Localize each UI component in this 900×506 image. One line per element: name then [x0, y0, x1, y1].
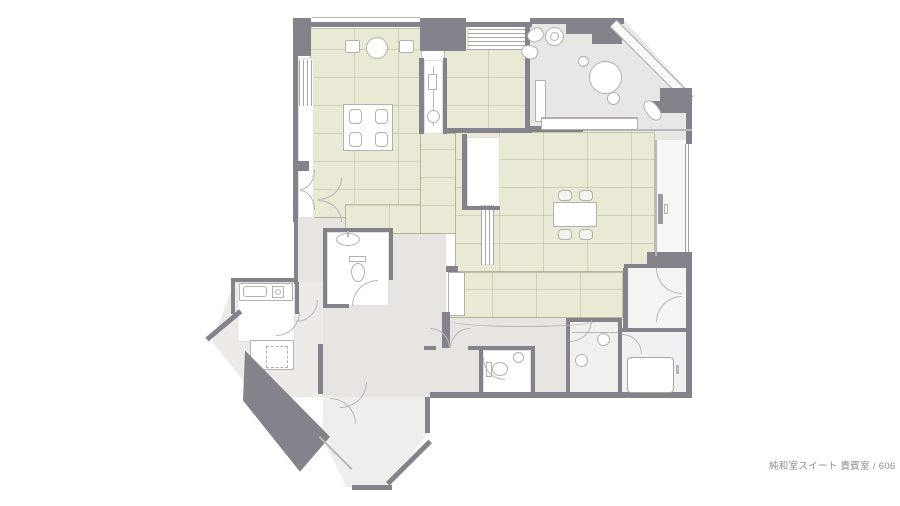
tv-cabinet	[535, 80, 546, 122]
bathtub	[627, 357, 674, 393]
wall-segment	[323, 228, 393, 232]
wall-segment	[622, 328, 688, 332]
flower-vase	[427, 110, 440, 123]
wall-segment	[294, 220, 298, 284]
wall-segment	[231, 278, 235, 314]
round-table	[589, 61, 622, 94]
window-band-east	[685, 144, 689, 256]
hand-basin	[513, 352, 524, 363]
wall-segment	[310, 22, 422, 27]
wall-segment	[389, 228, 393, 280]
toilet-tank	[349, 256, 366, 262]
seat-cushion	[375, 132, 388, 147]
wall-segment	[686, 332, 692, 396]
wall-segment	[446, 266, 458, 272]
tv-stand	[664, 204, 668, 214]
bedroom-closet	[448, 272, 465, 316]
sofa	[541, 117, 638, 130]
wall-segment	[479, 346, 535, 350]
wall-segment	[444, 128, 532, 133]
wall-segment	[479, 346, 483, 394]
tea-table	[366, 37, 388, 59]
wash-basin	[575, 354, 588, 367]
kitchen-sink	[243, 286, 267, 297]
wall-segment	[293, 18, 311, 56]
dining-table	[553, 202, 597, 227]
wall-segment	[686, 98, 692, 144]
floor-plan	[0, 0, 900, 506]
seat-cushion	[349, 109, 362, 124]
wall-segment	[420, 18, 466, 51]
faucet-icon	[347, 231, 349, 237]
wall-segment	[293, 55, 298, 165]
wall-segment	[462, 206, 500, 210]
faucet-icon	[676, 365, 679, 374]
seat-cushion	[375, 109, 388, 124]
wall-segment	[352, 485, 392, 490]
tatami-sleeping-area	[448, 272, 623, 318]
wall-segment	[623, 268, 628, 330]
window-line	[312, 17, 420, 18]
floor-edge-line	[655, 140, 657, 256]
wall-segment	[293, 171, 298, 222]
tokonoma-stand	[428, 74, 437, 90]
tea-chair	[345, 40, 360, 53]
dining-chair	[579, 229, 593, 240]
wall-segment	[323, 228, 327, 308]
stool	[578, 56, 589, 67]
wash-basin	[597, 333, 610, 346]
tokonoma-alcove-main	[467, 137, 500, 207]
wall-segment	[419, 58, 424, 134]
tea-chair	[399, 40, 414, 53]
shoji-screen-hatch	[481, 205, 494, 265]
seat-cushion	[349, 132, 362, 147]
wall-segment	[318, 344, 323, 394]
side-table-inner	[550, 32, 559, 41]
wall-segment	[531, 346, 535, 394]
wall-segment	[686, 256, 692, 332]
stove-burner	[275, 289, 281, 295]
wall-segment	[234, 278, 296, 282]
wall-segment	[462, 134, 467, 210]
plan-caption: 純和室スイート 貴賓室 / 606	[769, 460, 899, 473]
luggage-space-dashed	[266, 346, 288, 368]
dining-chair	[579, 190, 593, 201]
tv-screen	[658, 194, 663, 224]
wall-segment	[443, 58, 447, 134]
wall-segment	[425, 397, 430, 433]
stool	[607, 92, 620, 105]
dining-chair	[558, 190, 572, 201]
floor-plan-page: 純和室スイート 貴賓室 / 606	[0, 0, 900, 506]
wall-segment	[323, 304, 349, 308]
shelving-hatch	[299, 60, 313, 106]
wall-segment	[466, 22, 532, 27]
dining-chair	[558, 229, 572, 240]
